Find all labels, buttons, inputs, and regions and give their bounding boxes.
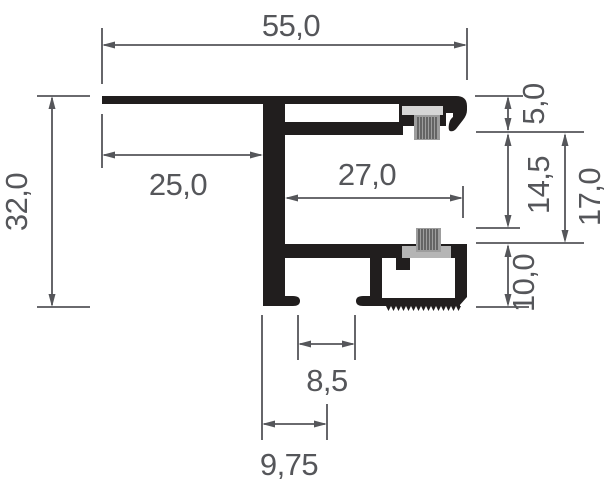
- arrow-up-icon: [49, 96, 56, 109]
- dim-label-cap-height: 5,0: [516, 83, 551, 125]
- profile-serration: [386, 306, 461, 311]
- dim-label-slot-width: 8,5: [306, 363, 348, 398]
- upper-brush-channel: [402, 106, 443, 115]
- profile-stem: [263, 96, 285, 306]
- upper-brush-bristle-lines: [418, 117, 436, 139]
- arrow-left-icon: [102, 152, 115, 159]
- profile-end-cap: [444, 96, 467, 131]
- profile-rebate-wall: [285, 122, 403, 135]
- dim-label-chamber-gap: 17,0: [572, 168, 607, 227]
- profile-stem-foot: [263, 296, 300, 306]
- arrow-right-icon: [450, 195, 463, 202]
- profile-body: [102, 96, 467, 311]
- arrow-down-icon: [562, 230, 569, 243]
- dim-brush-gap-lines: [476, 135, 520, 228]
- arrow-up-icon: [562, 133, 569, 146]
- profile-chamber-bottom: [370, 298, 460, 306]
- dim-label-slot-offset: 9,75: [260, 447, 318, 480]
- profile-lower-brush-hook: [396, 258, 410, 270]
- arrow-right-icon: [314, 421, 327, 428]
- arrow-down-icon: [505, 215, 512, 228]
- arrow-down-icon: [505, 118, 512, 131]
- dim-flange-offset-lines: [102, 114, 261, 168]
- profile-drawing: 55,0 32,0 25,0 27,0 5,0 14,5 17,0 10,0 8…: [0, 0, 614, 480]
- dim-label-overall-height: 32,0: [0, 173, 34, 232]
- dim-label-overall-width: 55,0: [262, 8, 321, 43]
- dim-label-chamber-width: 27,0: [338, 157, 397, 192]
- profile-chamber-right-wall: [455, 258, 467, 306]
- arrow-left-icon: [102, 42, 115, 49]
- arrow-right-icon: [342, 341, 355, 348]
- arrow-up-icon: [505, 133, 512, 146]
- arrow-up-icon: [505, 96, 512, 109]
- dim-label-base-height: 10,0: [506, 254, 541, 313]
- dim-overall-height-lines: [37, 96, 90, 307]
- arrow-left-icon: [262, 421, 275, 428]
- dim-slot-width-lines: [298, 315, 355, 360]
- technical-drawing-canvas: 55,0 32,0 25,0 27,0 5,0 14,5 17,0 10,0 8…: [0, 0, 614, 480]
- arrow-right-icon: [454, 42, 467, 49]
- arrow-right-icon: [250, 152, 263, 159]
- lower-brush-seal: [402, 228, 451, 258]
- arrow-down-icon: [49, 294, 56, 307]
- dim-label-brush-gap: 14,5: [521, 156, 556, 214]
- arrow-left-icon: [298, 341, 311, 348]
- dim-label-flange-offset: 25,0: [149, 167, 208, 202]
- arrow-left-icon: [285, 195, 298, 202]
- lower-brush-bristle-lines: [419, 229, 437, 250]
